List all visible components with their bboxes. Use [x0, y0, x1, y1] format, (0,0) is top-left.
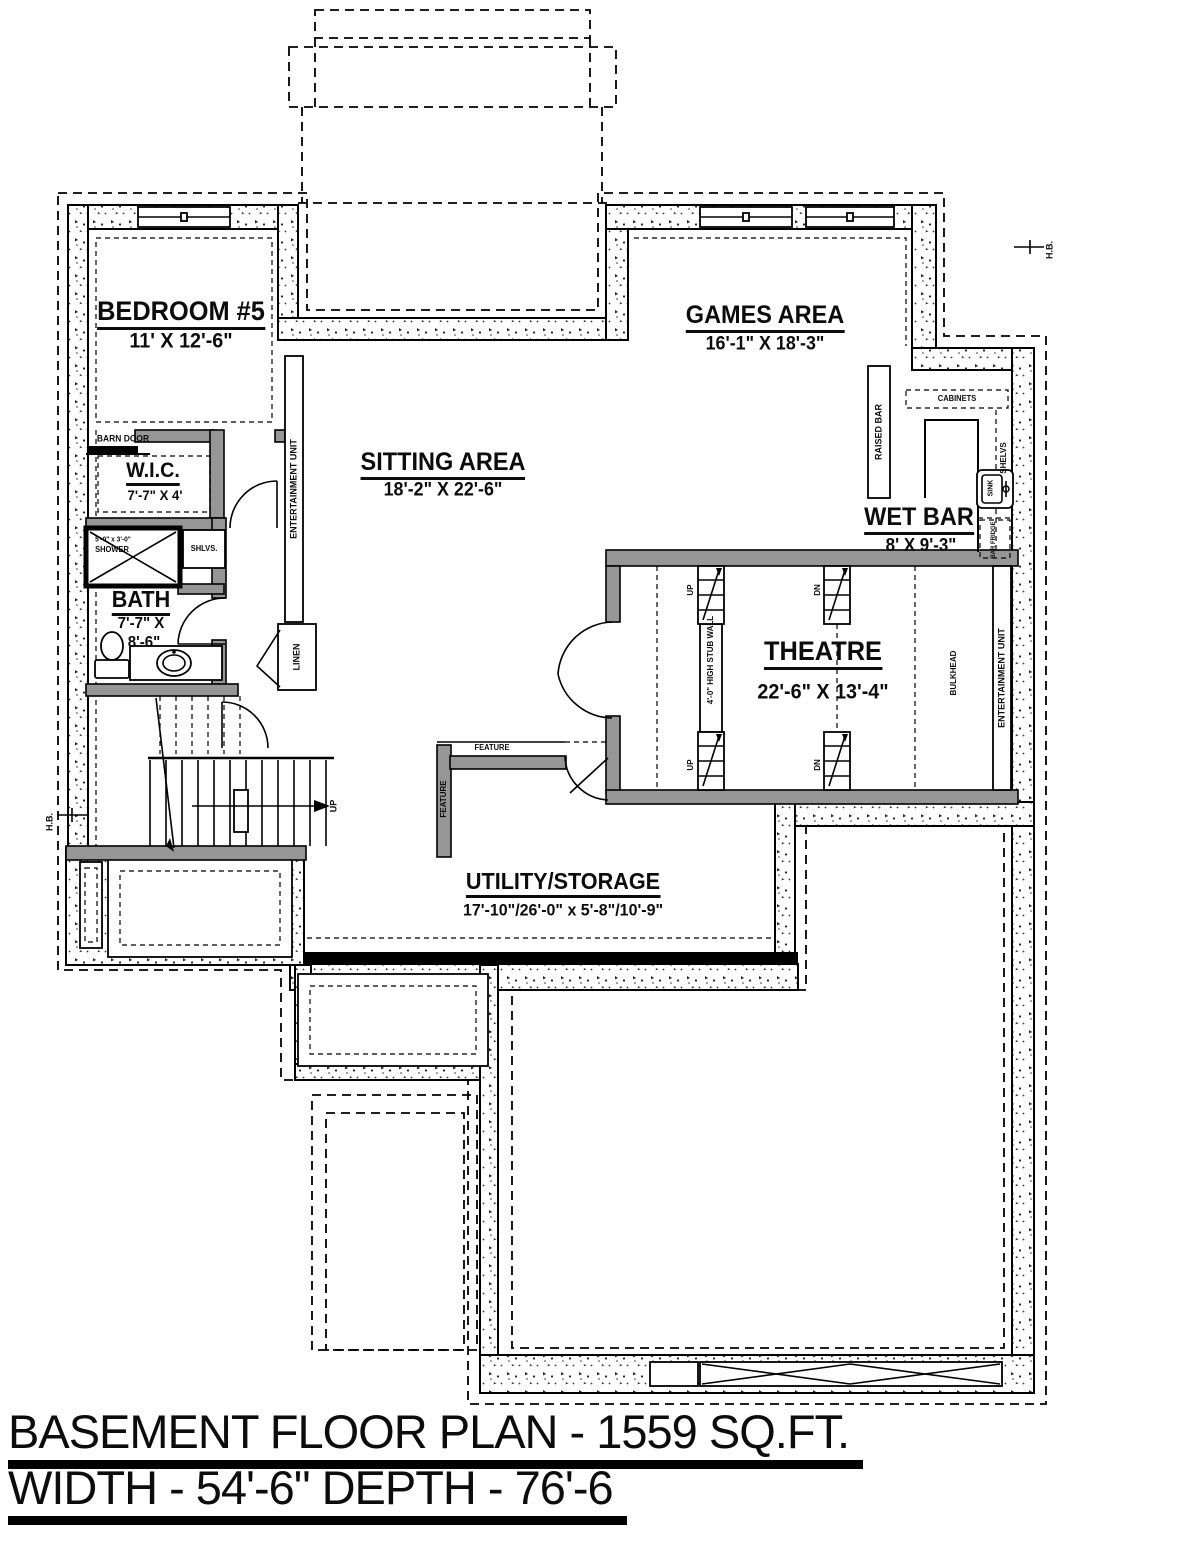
- sink-label: SINK: [988, 480, 995, 497]
- cabinets-label: CABINETS: [938, 395, 976, 403]
- hose-bib-left-label: H.B.: [46, 813, 55, 831]
- basement-floor-plan: BEDROOM #5 11' X 12'-6" SITTING AREA 18'…: [0, 0, 1200, 1553]
- entertainment-unit-theatre-label: ENTERTAINMENT UNIT: [998, 628, 1007, 728]
- theatre-dims: 22'-6" X 13'-4": [757, 682, 888, 703]
- shower-label: SHOWER: [95, 546, 129, 554]
- sitting-dims: 18'-2" X 22'-6": [384, 481, 503, 500]
- bath-name: BATH: [112, 588, 170, 616]
- up-stairs-label: UP: [330, 800, 339, 813]
- hose-bib-right-label: H.B.: [1046, 241, 1055, 259]
- plan-title: BASEMENT FLOOR PLAN - 1559 SQ.FT.: [8, 1408, 863, 1469]
- bar-shelves-label: SHELVS: [1000, 442, 1008, 473]
- up-theatre-top-label: UP: [687, 584, 695, 595]
- wic-name: W.I.C.: [126, 460, 180, 486]
- bar-fridge-label: BAR FRIDGE: [991, 521, 997, 558]
- games-name: GAMES AREA: [686, 303, 844, 333]
- wet-bar-dims: 8' X 9'-3": [886, 536, 957, 554]
- floor-plan-linework: [0, 0, 1200, 1553]
- plan-dimensions-title: WIDTH - 54'-6" DEPTH - 76'-6: [8, 1464, 627, 1525]
- doors: [178, 481, 612, 800]
- bedroom5-name: BEDROOM #5: [97, 298, 265, 330]
- stair-rail: [234, 790, 248, 832]
- dn-theatre-bottom-label: DN: [814, 759, 822, 771]
- stairs: [148, 696, 334, 852]
- wic-dims: 7'-7" X 4': [128, 488, 183, 502]
- bulkhead-label: BULKHEAD: [950, 651, 958, 696]
- raised-bar-label: RAISED BAR: [875, 404, 884, 460]
- bath-shelves-label: SHLVS.: [191, 545, 218, 553]
- utility-dims: 17'-10"/26'-0" x 5'-8"/10'-9": [463, 902, 663, 919]
- shower-size-label: 5'-0" x 3'-0": [95, 537, 131, 544]
- toilet: [101, 632, 123, 660]
- stub-wall-label: 4'-0" HIGH STUB WALL: [707, 616, 715, 704]
- feature-vertical-label: FEATURE: [440, 780, 448, 817]
- bedroom5-dims: 11' X 12'-6": [129, 331, 232, 352]
- barn-door: [88, 446, 138, 454]
- theatre-name: THEATRE: [764, 638, 882, 670]
- dn-theatre-top-label: DN: [814, 584, 822, 596]
- entertainment-unit-sitting-label: ENTERTAINMENT UNIT: [290, 439, 299, 539]
- bath-dims-1: 7'-7" X: [118, 616, 165, 632]
- toilet-tank: [95, 660, 129, 678]
- linen-label: LINEN: [293, 644, 302, 671]
- games-dims: 16'-1" X 18'-3": [706, 335, 825, 354]
- wet-bar-name: WET BAR: [864, 505, 974, 535]
- utility-name: UTILITY/STORAGE: [466, 870, 660, 898]
- linen-door: [257, 630, 280, 687]
- up-theatre-bottom-label: UP: [687, 759, 695, 770]
- deck-projection-dashed: [289, 10, 616, 203]
- feature-horizontal-label: FEATURE: [475, 744, 510, 752]
- sitting-name: SITTING AREA: [361, 450, 526, 480]
- bath-dims-2: 8'-6": [128, 635, 160, 651]
- vanity-sink: [157, 650, 191, 676]
- barn-door-label: BARN DOOR: [97, 435, 149, 444]
